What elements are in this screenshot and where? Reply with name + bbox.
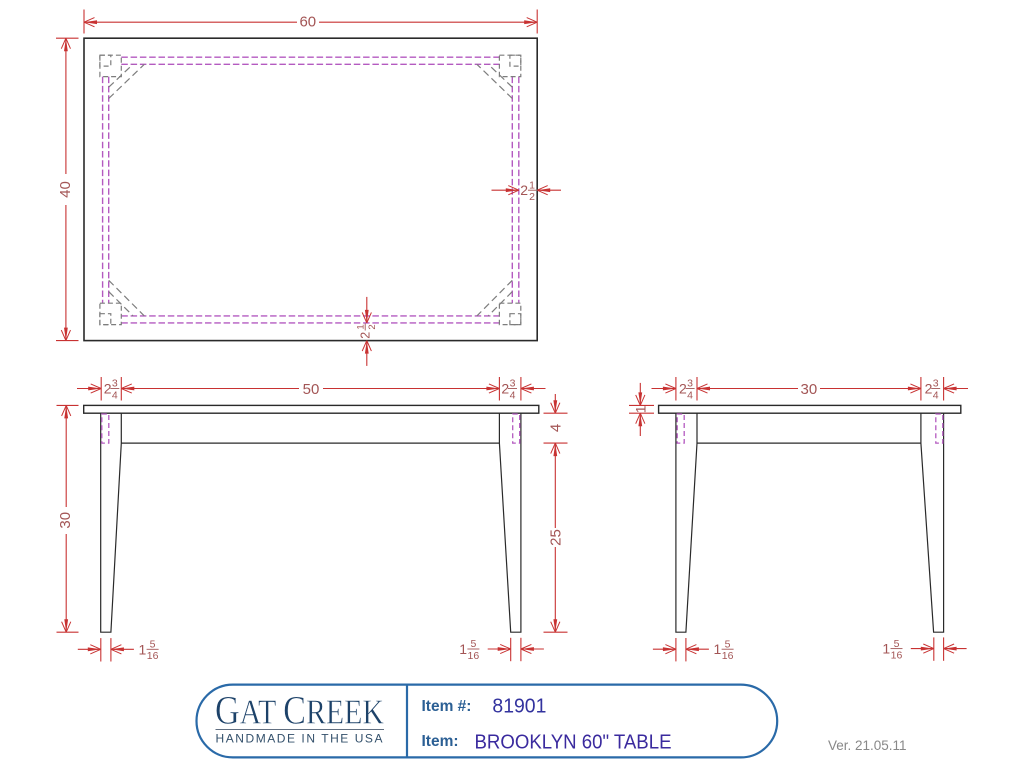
svg-text:30: 30 (57, 512, 74, 529)
svg-text:50: 50 (303, 381, 320, 398)
svg-text:16: 16 (147, 650, 159, 662)
svg-text:BROOKLYN 60" TABLE: BROOKLYN 60" TABLE (475, 731, 672, 754)
svg-text:5: 5 (894, 638, 900, 650)
svg-text:60: 60 (299, 13, 316, 30)
svg-text:5: 5 (725, 638, 731, 650)
svg-text:30: 30 (801, 381, 818, 398)
svg-text:4: 4 (933, 389, 939, 401)
svg-text:1: 1 (355, 324, 366, 329)
svg-text:3: 3 (510, 378, 516, 390)
svg-text:Ver. 21.05.11: Ver. 21.05.11 (828, 738, 907, 753)
svg-text:81901: 81901 (492, 696, 546, 718)
svg-text:5: 5 (150, 639, 156, 651)
svg-text:Item:: Item: (422, 733, 459, 750)
svg-text:4: 4 (510, 389, 516, 401)
svg-text:16: 16 (891, 649, 903, 661)
svg-text:16: 16 (468, 650, 480, 662)
svg-text:1: 1 (529, 179, 535, 191)
svg-text:GAT CREEK: GAT CREEK (215, 688, 384, 733)
svg-text:4: 4 (548, 424, 565, 432)
svg-text:4: 4 (112, 389, 118, 401)
svg-text:25: 25 (548, 529, 565, 546)
svg-text:1: 1 (632, 405, 648, 413)
svg-text:1: 1 (882, 641, 890, 657)
svg-text:2: 2 (520, 182, 528, 198)
svg-text:1: 1 (459, 641, 467, 657)
svg-text:3: 3 (933, 378, 939, 390)
svg-text:5: 5 (470, 638, 476, 650)
svg-text:1: 1 (714, 641, 722, 657)
svg-text:2: 2 (529, 191, 535, 203)
svg-text:2: 2 (359, 332, 373, 339)
svg-text:40: 40 (57, 181, 74, 198)
svg-text:3: 3 (112, 378, 118, 390)
svg-text:HANDMADE IN THE USA: HANDMADE IN THE USA (216, 732, 383, 746)
svg-text:4: 4 (687, 389, 693, 401)
svg-text:1: 1 (139, 641, 147, 657)
svg-text:2: 2 (367, 324, 378, 329)
svg-text:16: 16 (722, 650, 734, 662)
svg-text:Item #:: Item #: (422, 698, 472, 715)
svg-text:3: 3 (687, 378, 693, 390)
